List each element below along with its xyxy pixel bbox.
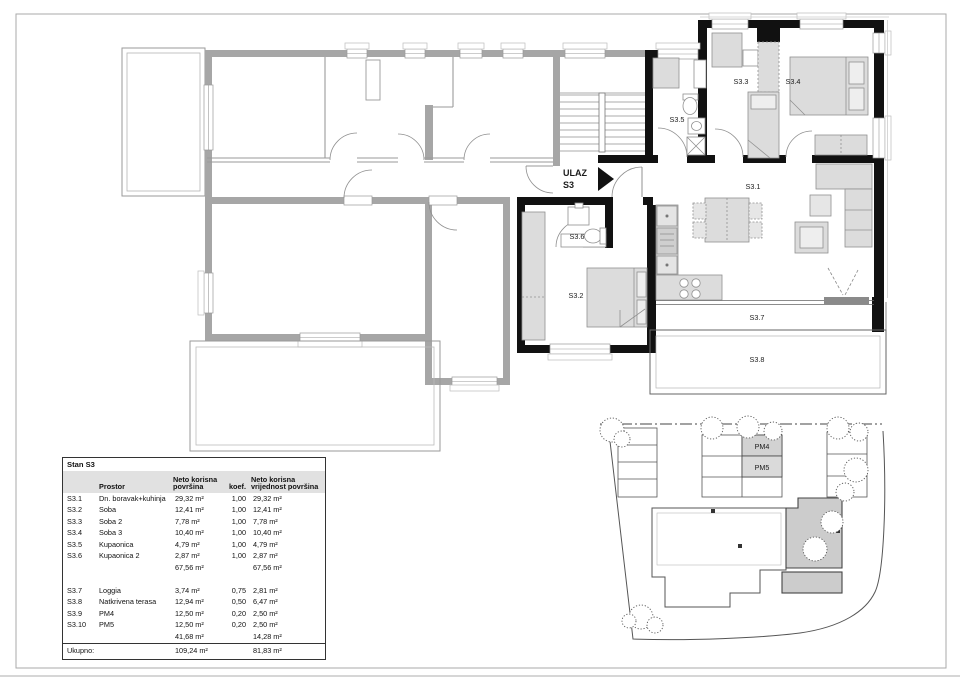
table-row: S3.2Soba12,41 m²1,0012,41 m²: [63, 505, 325, 517]
toilet-icon: [683, 98, 697, 115]
room-s33-furniture: [712, 33, 779, 158]
table-row: S3.8Natkrivena terasa12,94 m²0,506,47 m²: [63, 597, 325, 609]
pm5-label: PM5: [755, 463, 770, 472]
washer-icon: [568, 207, 589, 225]
table-total-row: Ukupno: 109,24 m² 81,83 m²: [63, 643, 325, 659]
stairwell: [560, 93, 645, 152]
coffee-table: [810, 195, 831, 216]
toilet-icon: [585, 229, 602, 243]
page-edge-shadow: [0, 675, 960, 677]
entrance-label-line1: ULAZ: [563, 168, 587, 178]
floor-plan-sheet: S3.1 S3.2 S3.3 S3.4 S3.5 S3.6 S3.7 S3.8 …: [0, 0, 960, 680]
table-row: S3.10PM512,50 m²0,202,50 m²: [63, 620, 325, 632]
room-label-s36: S3.6: [569, 232, 584, 241]
total-label: Ukupno:: [63, 647, 173, 655]
table-row-subtotal: 67,56 m²67,56 m²: [63, 562, 325, 574]
pm4-label: PM4: [755, 442, 770, 451]
stove-burner-icon: [680, 279, 688, 287]
col-header-value-2: vrijednost površina: [251, 483, 325, 491]
site-plan: PM4 PM5: [600, 416, 885, 640]
table-title: Stan S3: [63, 458, 325, 471]
table-row: S3.1Dn. boravak+kuhinja29,32 m²1,0029,32…: [63, 493, 325, 505]
col-header-prostor: Prostor: [99, 483, 173, 491]
room-label-s38: S3.8: [749, 355, 764, 364]
table-row: S3.9PM412,50 m²0,202,50 m²: [63, 608, 325, 620]
sink-icon: [688, 118, 705, 134]
col-header-area-2: površina: [173, 483, 223, 491]
room-label-s34: S3.4: [785, 77, 800, 86]
living-kitchen-furniture: [656, 164, 872, 300]
room-s34-furniture: [790, 57, 868, 155]
table-row: S3.5Kupaonica4,79 m²1,004,79 m²: [63, 539, 325, 551]
parking-grid: [618, 428, 867, 497]
table-header: Prostor Neto korisnapovršina koef. Neto …: [63, 471, 325, 493]
area-table: Stan S3 Prostor Neto korisnapovršina koe…: [62, 457, 326, 660]
table-row-subtotal: 41,68 m²14,28 m²: [63, 631, 325, 643]
entrance-arrow-icon: [598, 167, 614, 191]
room-label-s33: S3.3: [733, 77, 748, 86]
table-row: S3.7Loggia3,74 m²0,752,81 m²: [63, 585, 325, 597]
sofa: [816, 164, 872, 189]
total-area: 109,24 m²: [173, 647, 223, 655]
total-value: 81,83 m²: [251, 647, 325, 655]
table-row: S3.3Soba 27,78 m²1,007,78 m²: [63, 516, 325, 528]
kitchen-sink-icon: [657, 228, 677, 254]
table-row: S3.4Soba 310,40 m²1,0010,40 m²: [63, 528, 325, 540]
room-label-s32: S3.2: [568, 291, 583, 300]
entrance-label: ULAZ S3: [563, 167, 614, 191]
table-row: S3.6Kupaonica 22,87 m²1,002,87 m²: [63, 551, 325, 563]
sliding-door: [824, 297, 869, 304]
room-label-s35: S3.5: [669, 115, 684, 124]
room-label-s37: S3.7: [749, 313, 764, 322]
room-label-s31: S3.1: [745, 182, 760, 191]
table-row-spacer: [63, 574, 325, 586]
col-header-koef: koef.: [229, 483, 246, 491]
entrance-label-line2: S3: [563, 180, 574, 190]
